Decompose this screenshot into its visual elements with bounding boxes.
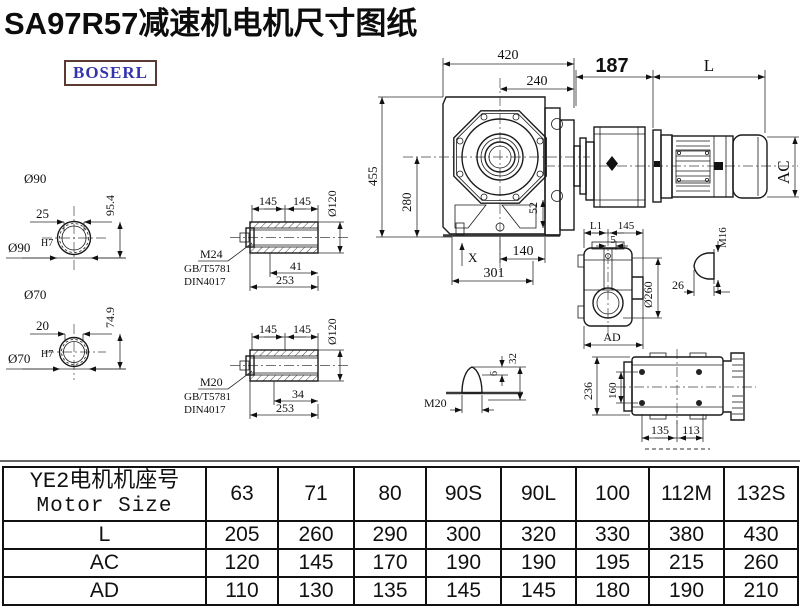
- gearbox-front-view: 420 240 455 280 52 X 140: [365, 48, 590, 285]
- dim-side-145: 145: [618, 220, 635, 232]
- cell-AC-0: 120: [206, 549, 278, 577]
- dim-hsB-l2: 145: [293, 322, 311, 336]
- cell-L-0: 205: [206, 521, 278, 549]
- dim-shaftA-bore: Ø90: [8, 240, 30, 255]
- gearbox-side-view: L1 145 5 Ø260 AD: [578, 220, 662, 349]
- cell-AC-1: 145: [278, 549, 354, 577]
- dim-front-center-height: 280: [399, 193, 414, 213]
- hollow-shaft-a: 145 145 Ø120 M24 GB/T5781 DIN4017 41 253: [184, 190, 348, 291]
- dim-m20-h32: 32: [507, 353, 519, 364]
- size-col-132S: 132S: [724, 467, 798, 521]
- dim-hsB-total: 253: [276, 401, 294, 415]
- dim-hsB-thread: M20: [200, 375, 223, 389]
- hollow-shaft-b: 145 145 Ø120 M20 GB/T5781 DIN4017 34 253: [184, 318, 348, 419]
- dim-hsA-l1: 145: [259, 194, 277, 208]
- cell-AD-1: 130: [278, 577, 354, 605]
- dim-shaftA-width: 25: [36, 206, 49, 221]
- dim-side-l1: L1: [590, 220, 602, 232]
- dim-hsA-total: 253: [276, 273, 294, 287]
- header-en: Motor Size: [4, 495, 205, 519]
- size-col-90L: 90L: [501, 467, 576, 521]
- row-label-AC: AC: [3, 549, 206, 577]
- dim-front-height: 455: [365, 167, 380, 187]
- dim-hsA-std1: GB/T5781: [184, 263, 231, 275]
- cell-AD-3: 145: [426, 577, 501, 605]
- dim-hsB-std2: DIN4017: [184, 404, 226, 416]
- dim-foot-160: 160: [607, 382, 619, 399]
- dim-hsB-dia: Ø120: [325, 318, 339, 345]
- table-row-L: L 205 260 290 300 320 330 380 430: [3, 521, 798, 549]
- cell-AC-6: 215: [649, 549, 724, 577]
- cell-AC-5: 195: [576, 549, 649, 577]
- header-cn: YE2电机机座号: [4, 469, 205, 494]
- cell-AD-7: 210: [724, 577, 798, 605]
- dim-motor-len: L: [704, 56, 714, 75]
- dim-front-base: 301: [484, 266, 505, 281]
- dim-front-offset: 52: [526, 202, 540, 214]
- size-col-112M: 112M: [649, 467, 724, 521]
- plug-m20-detail: M20 6 32: [424, 353, 526, 413]
- cell-L-5: 330: [576, 521, 649, 549]
- table-header-row: YE2电机机座号 Motor Size 63 71 80 90S 90L 100…: [3, 467, 798, 521]
- page: SA97R57减速机电机尺寸图纸 BOSERL Ø90 25 95.4: [0, 0, 800, 613]
- cell-AD-6: 190: [649, 577, 724, 605]
- brand-logo-text: BOSERL: [73, 63, 148, 82]
- cell-AC-7: 260: [724, 549, 798, 577]
- table-row-AD: AD 110 130 135 145 145 180 190 210: [3, 577, 798, 605]
- dim-foot-236: 236: [581, 382, 595, 400]
- cell-L-4: 320: [501, 521, 576, 549]
- cell-AD-4: 145: [501, 577, 576, 605]
- cell-L-1: 260: [278, 521, 354, 549]
- brand-logo: BOSERL: [64, 60, 157, 86]
- page-title: SA97R57减速机电机尺寸图纸: [4, 0, 417, 43]
- dim-m16-thread: M16: [717, 227, 729, 248]
- cell-AC-4: 190: [501, 549, 576, 577]
- dim-foot-135: 135: [651, 423, 669, 437]
- dim-shaftA-dia: Ø90: [24, 171, 46, 186]
- bolt-m16-detail: M16 26: [672, 227, 730, 296]
- dim-hsA-std2: DIN4017: [184, 276, 226, 288]
- dim-shaftB-width: 20: [36, 318, 49, 333]
- dim-shaftB-bore: Ø70: [8, 351, 30, 366]
- dim-shaftA-height: 95.4: [103, 195, 117, 216]
- cell-AC-2: 170: [354, 549, 426, 577]
- cell-AD-5: 180: [576, 577, 649, 605]
- dim-foot-113: 113: [682, 423, 700, 437]
- dim-side-ad: AD: [603, 330, 621, 344]
- shaft-end-detail-b: Ø70 20 74.9 Ø70 H7: [6, 287, 126, 380]
- cell-L-7: 430: [724, 521, 798, 549]
- mounting-foot-view: 236 160 135 113: [581, 349, 756, 449]
- size-col-100: 100: [576, 467, 649, 521]
- cell-L-3: 300: [426, 521, 501, 549]
- dim-hsB-screw: 34: [292, 387, 304, 401]
- size-col-90S: 90S: [426, 467, 501, 521]
- size-col-80: 80: [354, 467, 426, 521]
- dim-front-foot: 140: [513, 244, 534, 259]
- dim-front-width: 420: [498, 48, 519, 63]
- dim-shaftB-dia: Ø70: [24, 287, 46, 302]
- motor-assembly: 187 L AC: [545, 55, 799, 207]
- dim-m20-thread: M20: [424, 396, 447, 410]
- size-col-63: 63: [206, 467, 278, 521]
- shaft-end-detail-a: Ø90 25 95.4 Ø90 H7: [6, 171, 126, 270]
- cell-L-6: 380: [649, 521, 724, 549]
- dim-hsB-l1: 145: [259, 322, 277, 336]
- dim-hsA-l2: 145: [293, 194, 311, 208]
- dim-hsA-screw: 41: [290, 259, 302, 273]
- dim-front-width-half: 240: [527, 74, 548, 89]
- dim-hsB-std1: GB/T5781: [184, 391, 231, 403]
- cell-AD-2: 135: [354, 577, 426, 605]
- dim-side-5: 5: [610, 234, 616, 246]
- size-col-71: 71: [278, 467, 354, 521]
- dim-shaftA-bore-fit: H7: [41, 238, 53, 249]
- table-header-motor-size: YE2电机机座号 Motor Size: [3, 467, 206, 521]
- cell-AD-0: 110: [206, 577, 278, 605]
- dim-hsA-thread: M24: [200, 247, 223, 261]
- motor-size-table: YE2电机机座号 Motor Size 63 71 80 90S 90L 100…: [2, 466, 799, 606]
- dim-shaftB-height: 74.9: [103, 307, 117, 328]
- dim-hsA-dia: Ø120: [325, 190, 339, 217]
- dim-motor-dia: AC: [774, 160, 793, 184]
- row-label-AD: AD: [3, 577, 206, 605]
- dim-m16-len: 26: [672, 278, 684, 292]
- dim-m20-h6: 6: [489, 371, 500, 376]
- row-label-L: L: [3, 521, 206, 549]
- cell-AC-3: 190: [426, 549, 501, 577]
- cell-L-2: 290: [354, 521, 426, 549]
- dim-front-x-marker: X: [468, 250, 478, 265]
- dim-shaftB-bore-fit: H7: [41, 349, 53, 360]
- dim-motor-flange-len: 187: [595, 55, 628, 77]
- table-row-AC: AC 120 145 170 190 190 195 215 260: [3, 549, 798, 577]
